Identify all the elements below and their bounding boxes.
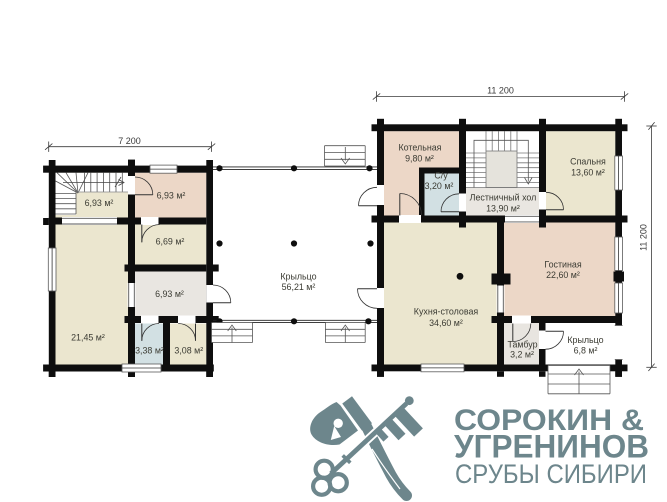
- svg-text:11 200: 11 200: [487, 86, 514, 96]
- svg-text:3,2 м²: 3,2 м²: [510, 350, 534, 360]
- svg-text:СРУБЫ СИБИРИ: СРУБЫ СИБИРИ: [455, 459, 647, 489]
- svg-text:Гостиная: Гостиная: [544, 260, 581, 270]
- svg-text:Кухня-столовая: Кухня-столовая: [414, 307, 479, 317]
- svg-text:9,80 м²: 9,80 м²: [405, 154, 434, 164]
- svg-text:13,60 м²: 13,60 м²: [571, 168, 605, 178]
- svg-text:3,08 м²: 3,08 м²: [174, 346, 203, 356]
- svg-text:13,90 м²: 13,90 м²: [486, 204, 520, 214]
- svg-text:7 200: 7 200: [118, 136, 141, 146]
- svg-text:6,8 м²: 6,8 м²: [574, 346, 598, 356]
- svg-text:Котельная: Котельная: [399, 143, 442, 153]
- svg-text:22,60 м²: 22,60 м²: [546, 270, 580, 280]
- svg-text:34,60 м²: 34,60 м²: [429, 318, 463, 328]
- svg-text:3,20 м²: 3,20 м²: [425, 181, 454, 191]
- svg-text:6,93 м²: 6,93 м²: [155, 289, 184, 299]
- svg-text:21,45 м²: 21,45 м²: [71, 333, 105, 343]
- svg-text:6,69 м²: 6,69 м²: [156, 237, 185, 247]
- svg-text:6,93 м²: 6,93 м²: [85, 198, 114, 208]
- svg-text:С/у: С/у: [434, 171, 448, 181]
- svg-text:Лестничный хол: Лестничный хол: [470, 193, 537, 203]
- svg-text:3,38 м²: 3,38 м²: [135, 346, 164, 356]
- svg-text:Тамбур: Тамбур: [507, 340, 537, 350]
- svg-text:Крыльцо: Крыльцо: [280, 272, 316, 282]
- svg-text:6,93 м²: 6,93 м²: [157, 191, 186, 201]
- svg-text:Спальня: Спальня: [570, 157, 606, 167]
- svg-text:11 200: 11 200: [639, 224, 649, 251]
- svg-text:56,21 м²: 56,21 м²: [282, 282, 316, 292]
- svg-text:Крыльцо: Крыльцо: [567, 335, 603, 345]
